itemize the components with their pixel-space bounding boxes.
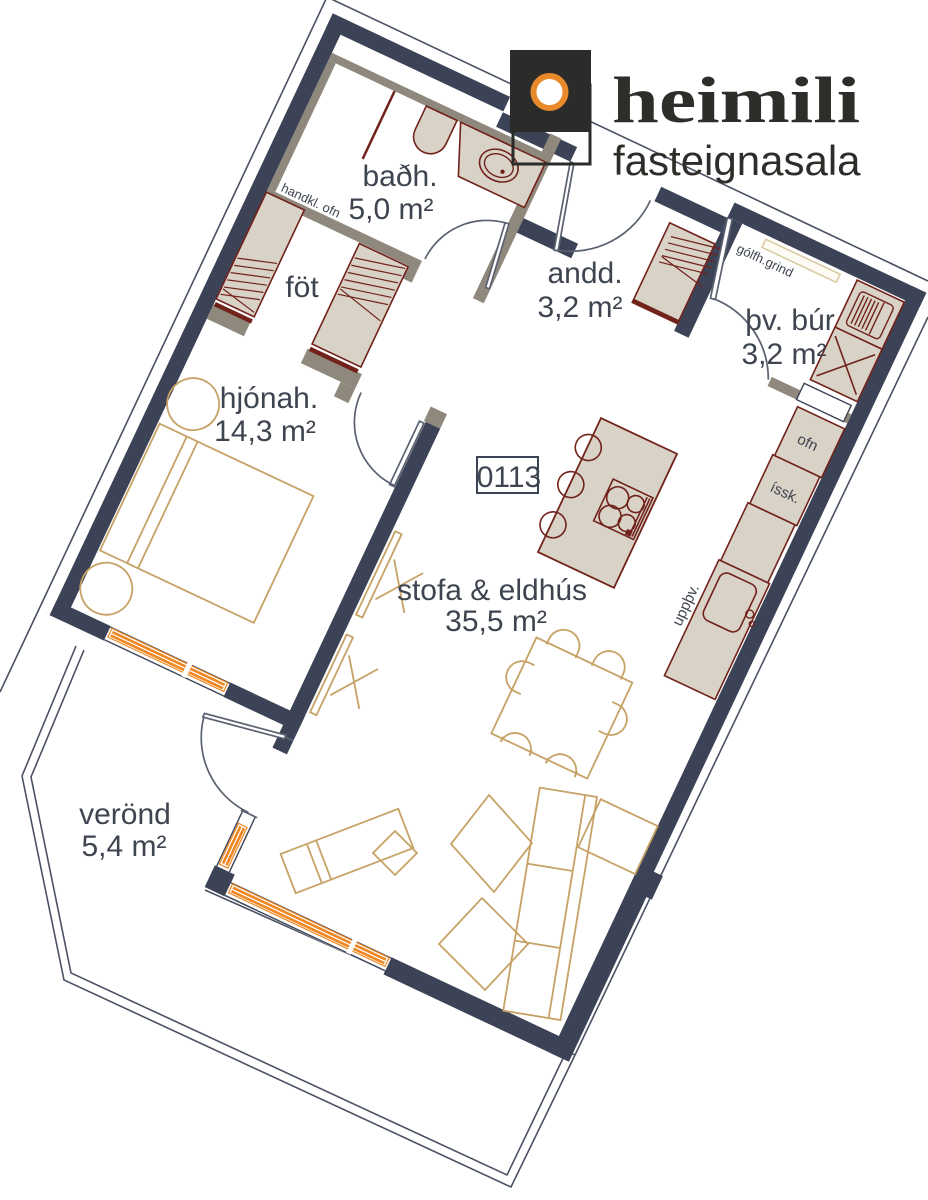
svg-text:þv. búr: þv. búr: [745, 304, 835, 337]
svg-text:stofa & eldhús: stofa & eldhús: [397, 574, 587, 607]
svg-text:fasteignasala: fasteignasala: [613, 137, 861, 184]
svg-text:andd.: andd.: [547, 257, 622, 290]
svg-text:heimili: heimili: [612, 64, 860, 137]
svg-text:5,0 m²: 5,0 m²: [348, 193, 433, 226]
svg-text:hjónah.: hjónah.: [220, 382, 318, 415]
svg-text:14,3 m²: 14,3 m²: [214, 415, 316, 448]
svg-text:3,2 m²: 3,2 m²: [741, 338, 826, 371]
svg-text:3,2 m²: 3,2 m²: [537, 291, 622, 324]
svg-text:35,5 m²: 35,5 m²: [445, 605, 547, 638]
svg-text:baðh.: baðh.: [362, 160, 437, 193]
svg-text:föt: föt: [285, 271, 319, 304]
svg-text:5,4 m²: 5,4 m²: [81, 830, 166, 863]
svg-text:verönd: verönd: [79, 798, 171, 831]
svg-text:0113: 0113: [477, 461, 542, 494]
